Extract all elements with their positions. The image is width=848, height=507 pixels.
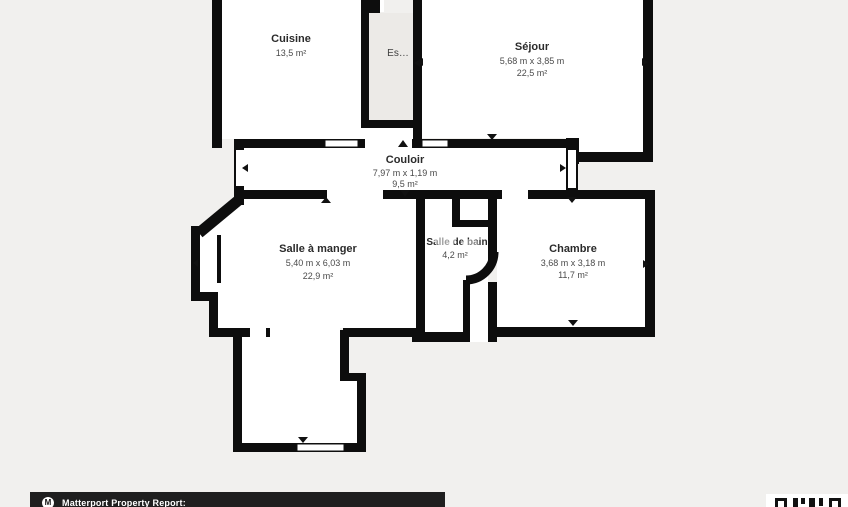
room-name-chambre: Chambre xyxy=(549,243,597,255)
room-area-salle-a-manger: 22,9 m² xyxy=(303,271,334,281)
window-couloir-right xyxy=(422,140,448,147)
room-area-couloir: 9,5 m² xyxy=(392,179,418,189)
room-name-escalier: Es… xyxy=(387,48,409,59)
qr-code xyxy=(766,494,848,507)
floorplan-drawing: Cuisine 13,5 m² Es… Séjour 5,68 m x 3,85… xyxy=(0,0,848,507)
stair-shaft xyxy=(369,13,413,120)
room-name-cuisine: Cuisine xyxy=(271,33,311,45)
room-name-salle-a-manger: Salle à manger xyxy=(279,243,357,255)
watermark-blotch xyxy=(434,236,456,246)
window-lower-room xyxy=(297,444,344,451)
report-footer-bar: M Matterport Property Report: xyxy=(30,492,445,507)
room-dims-chambre: 3,68 m x 3,18 m xyxy=(541,258,606,268)
report-label: Matterport Property Report: xyxy=(62,498,186,507)
qr-position-marker xyxy=(829,498,841,507)
label-escalier: Es… xyxy=(387,48,409,59)
room-area-cuisine: 13,5 m² xyxy=(276,48,307,58)
room-area-chambre: 11,7 m² xyxy=(558,270,588,280)
floorplan-page: Cuisine 13,5 m² Es… Séjour 5,68 m x 3,85… xyxy=(0,0,848,507)
room-name-sejour: Séjour xyxy=(515,41,550,53)
room-dims-sejour: 5,68 m x 3,85 m xyxy=(500,56,565,66)
alcove-divider-wall xyxy=(217,235,221,283)
matterport-logo-icon: M xyxy=(42,497,54,507)
room-name-couloir: Couloir xyxy=(386,154,425,166)
room-dims-couloir: 7,97 m x 1,19 m xyxy=(373,168,438,178)
watermark-blotch xyxy=(461,239,479,247)
room-area-salle-de-bain: 4,2 m² xyxy=(442,250,468,260)
room-area-sejour: 22,5 m² xyxy=(517,68,548,78)
qr-position-marker xyxy=(775,498,787,507)
window-couloir-left xyxy=(325,140,358,147)
room-dims-salle-a-manger: 5,40 m x 6,03 m xyxy=(286,258,351,268)
